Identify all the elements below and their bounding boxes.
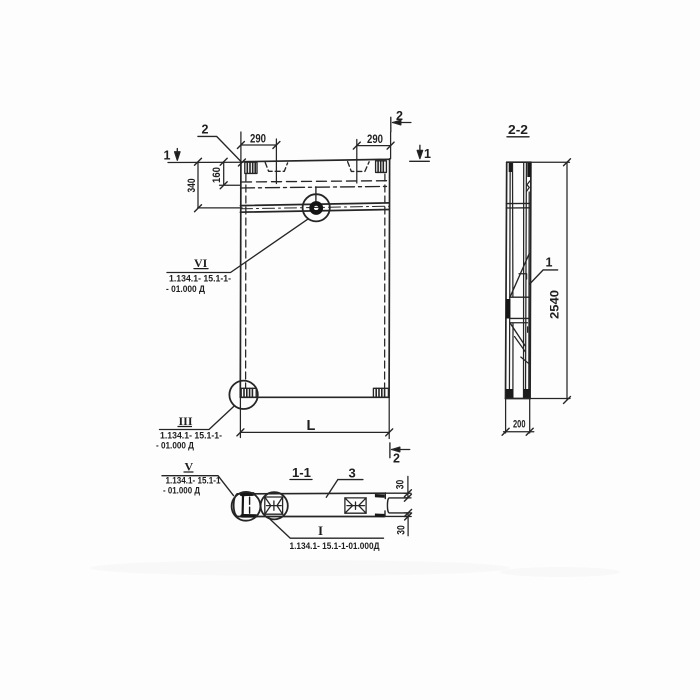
svg-text:VI: VI — [194, 256, 208, 270]
svg-text:1: 1 — [164, 149, 171, 163]
svg-text:1: 1 — [424, 147, 431, 161]
svg-text:340: 340 — [186, 179, 198, 193]
svg-text:- 01.000 Д: - 01.000 Д — [163, 486, 200, 497]
svg-text:1: 1 — [546, 256, 553, 270]
svg-text:290: 290 — [367, 132, 383, 146]
svg-text:- 01.000 Д: - 01.000 Д — [166, 284, 205, 295]
svg-text:1.134.1- 15.1-1-01.000Д: 1.134.1- 15.1-1-01.000Д — [290, 541, 380, 552]
svg-text:2: 2 — [393, 452, 400, 466]
svg-text:30: 30 — [395, 480, 407, 490]
svg-text:I: I — [318, 523, 323, 538]
svg-text:160: 160 — [211, 167, 223, 183]
svg-text:3: 3 — [349, 466, 356, 481]
svg-text:2: 2 — [202, 123, 209, 137]
svg-text:2-2: 2-2 — [508, 123, 528, 137]
svg-text:L: L — [307, 418, 316, 434]
svg-text:2540: 2540 — [550, 290, 562, 319]
svg-text:30: 30 — [396, 525, 408, 535]
svg-text:290: 290 — [250, 132, 266, 146]
svg-text:2: 2 — [396, 109, 403, 123]
svg-text:1-1: 1-1 — [292, 466, 311, 480]
svg-text:1.134.1- 15.1-1-: 1.134.1- 15.1-1- — [169, 274, 231, 285]
svg-text:- 01.000 Д: - 01.000 Д — [156, 441, 194, 452]
svg-text:200: 200 — [513, 419, 526, 431]
